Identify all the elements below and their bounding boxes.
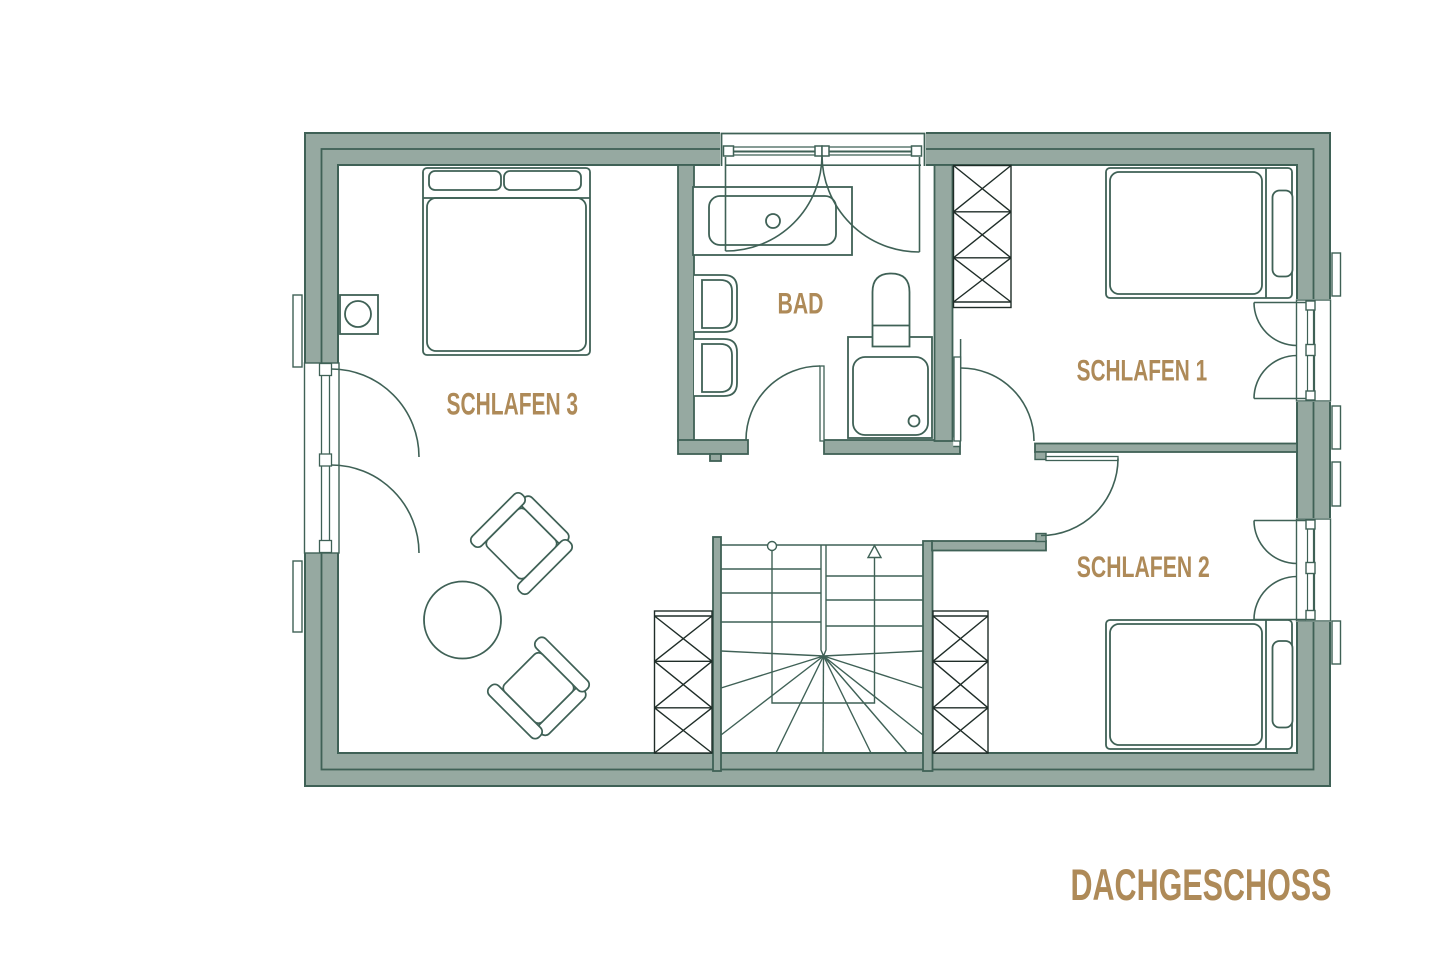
svg-text:DACHGESCHOSS: DACHGESCHOSS xyxy=(1071,860,1332,910)
svg-text:BAD: BAD xyxy=(778,288,824,321)
svg-text:SCHLAFEN 3: SCHLAFEN 3 xyxy=(447,386,579,422)
svg-text:SCHLAFEN 2: SCHLAFEN 2 xyxy=(1077,552,1210,584)
svg-text:SCHLAFEN 1: SCHLAFEN 1 xyxy=(1077,356,1208,388)
